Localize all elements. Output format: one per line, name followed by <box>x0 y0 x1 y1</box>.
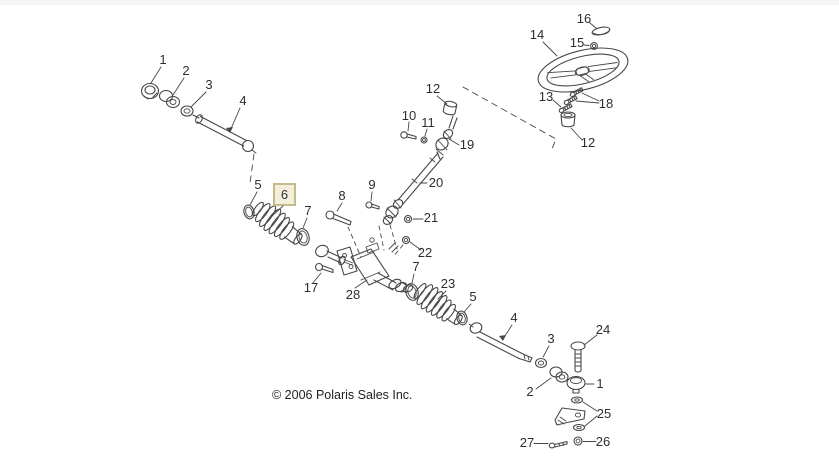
leader-7-left <box>303 218 307 228</box>
dash-bolt9-to-gear <box>379 226 384 250</box>
dash-bolt8-to-gear <box>348 227 361 257</box>
callout-1-lower: 1 <box>596 376 603 391</box>
bolt-8 <box>326 211 351 225</box>
leader-19 <box>449 139 459 145</box>
callout-18: 18 <box>599 96 613 111</box>
callout-2-upper: 2 <box>182 63 189 78</box>
bushing-12-lower <box>561 112 575 127</box>
callout-7-left: 7 <box>304 203 311 218</box>
leader-10 <box>408 122 409 131</box>
leader-18 <box>576 93 599 103</box>
callout-25: 25 <box>597 406 611 421</box>
u-joint-lower <box>382 198 405 227</box>
top-bar <box>0 0 839 5</box>
callout-4-upper: 4 <box>239 93 246 108</box>
nut-lower-3 <box>536 359 547 368</box>
leader-1-upper <box>151 67 161 83</box>
copyright-text: © 2006 Polaris Sales Inc. <box>272 388 413 402</box>
callout-23: 23 <box>441 276 455 291</box>
jam-nuts-lower-2 <box>550 367 568 382</box>
leader-14 <box>543 42 557 56</box>
nut-26 <box>574 437 582 445</box>
nut-upper <box>181 106 193 116</box>
callout-14: 14 <box>530 27 544 42</box>
callout-10: 10 <box>402 108 416 123</box>
leader-2-upper <box>173 78 184 95</box>
leader-5-left <box>250 192 257 205</box>
leader-11 <box>425 129 427 136</box>
bolt-10 <box>401 132 416 139</box>
bolt-17 <box>316 264 334 273</box>
leader-3-upper <box>191 92 206 107</box>
center-cap-16 <box>591 26 610 37</box>
callout-12-upper: 12 <box>426 81 440 96</box>
tie-rod-end-lower <box>567 377 585 394</box>
callout-22: 22 <box>418 245 432 260</box>
leader-12-upper <box>437 96 447 104</box>
leader-12-lower <box>571 128 582 140</box>
callout-3-lower: 3 <box>547 331 554 346</box>
leader-28 <box>355 280 367 288</box>
leader-5-right <box>464 304 471 312</box>
callout-20: 20 <box>429 175 443 190</box>
leader-2-lower <box>536 378 551 389</box>
callout-28: 28 <box>346 287 360 302</box>
callout-4-lower: 4 <box>510 310 517 325</box>
tie-rod-upper <box>193 114 256 153</box>
callout-6: 6 <box>281 187 288 202</box>
tie-rod-end-upper <box>142 84 159 100</box>
callout-27: 27 <box>520 435 534 450</box>
callout-5-right: 5 <box>469 289 476 304</box>
callout-11: 11 <box>421 115 435 130</box>
callout-21: 21 <box>424 210 438 225</box>
callout-8: 8 <box>338 188 345 203</box>
leader-7-right <box>412 274 414 283</box>
jam-nuts-upper <box>160 91 180 108</box>
tie-rod-lower <box>468 321 532 362</box>
steering-gear-28 <box>314 238 414 294</box>
callout-3-upper: 3 <box>205 77 212 92</box>
washers-and-bracket-25 <box>555 397 585 431</box>
bolt-9 <box>366 202 379 209</box>
nut-22 <box>403 237 410 244</box>
leader-3-lower <box>543 346 549 357</box>
callout-26: 26 <box>596 434 610 449</box>
callout-1-upper: 1 <box>159 52 166 67</box>
dash-nut22-to-gear <box>393 245 403 257</box>
callout-19: 19 <box>460 137 474 152</box>
callout-9: 9 <box>368 177 375 192</box>
exploded-diagram-canvas: 1 2 3 4 5 6 7 17 <box>0 0 839 471</box>
callout-15: 15 <box>570 35 584 50</box>
parts-diagram-page: 1 2 3 4 5 6 7 17 <box>0 0 839 471</box>
dash-shaft-to-gear <box>390 225 397 249</box>
leader-24 <box>584 335 597 345</box>
clamp-left-5 <box>242 204 255 220</box>
nut-21 <box>405 216 412 223</box>
bolt-27 <box>549 442 567 448</box>
bolt-24 <box>571 342 585 372</box>
nut-11 <box>421 137 427 143</box>
callout-7-right: 7 <box>412 259 419 274</box>
leader-8 <box>337 203 342 211</box>
leader-9 <box>371 192 372 201</box>
leader-13 <box>553 100 561 107</box>
callout-5-left: 5 <box>254 177 261 192</box>
callout-16: 16 <box>577 11 591 26</box>
callout-2-lower: 2 <box>526 384 533 399</box>
callout-12-lower: 12 <box>581 135 595 150</box>
u-joint-19 <box>433 116 457 159</box>
callout-24: 24 <box>596 322 610 337</box>
leader-15 <box>584 45 589 46</box>
callout-17: 17 <box>304 280 318 295</box>
callout-13: 13 <box>539 89 553 104</box>
leader-4-lower-arrow <box>499 335 506 341</box>
